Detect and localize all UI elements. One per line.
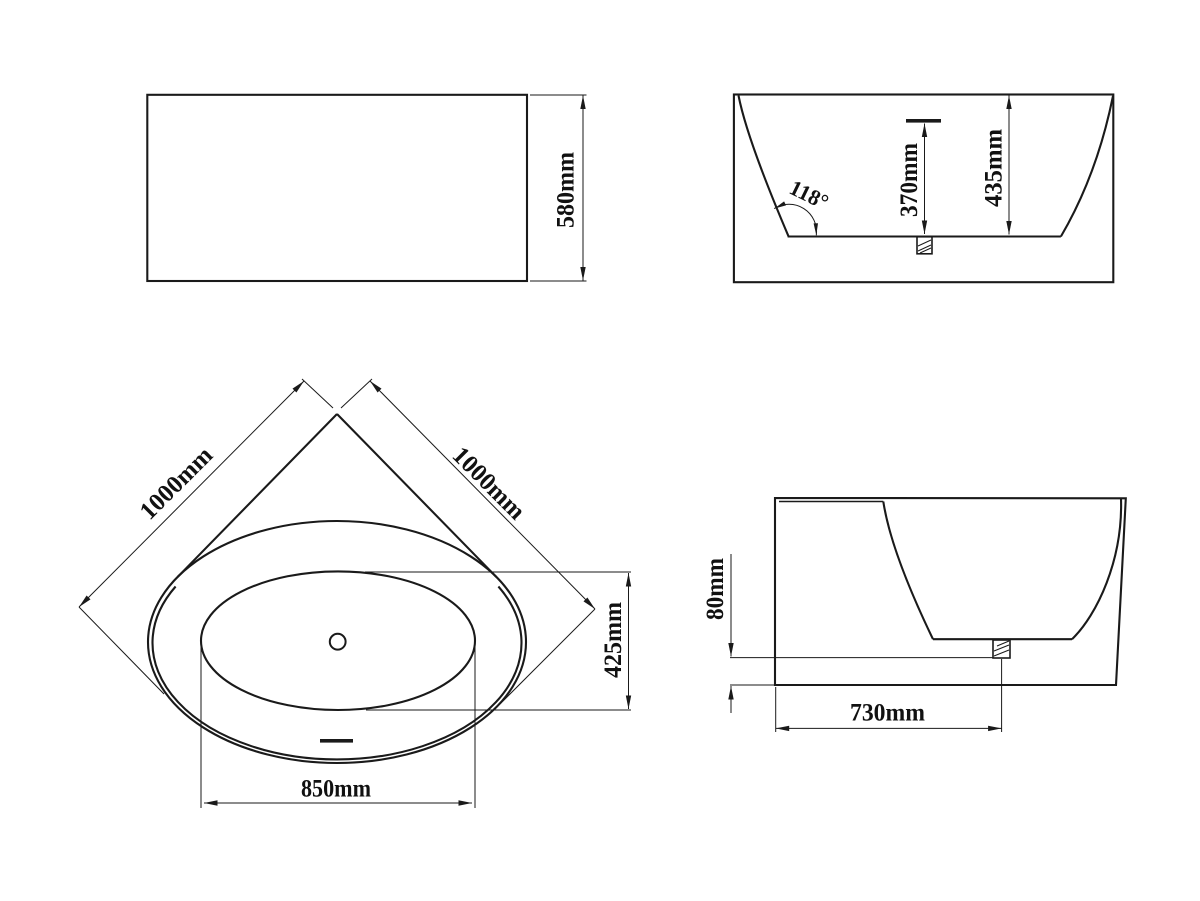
svg-text:580mm: 580mm — [553, 152, 580, 228]
svg-text:370mm: 370mm — [896, 143, 923, 217]
svg-text:1000mm: 1000mm — [447, 442, 531, 526]
svg-text:425mm: 425mm — [600, 602, 627, 678]
svg-text:118°: 118° — [786, 175, 833, 215]
svg-text:435mm: 435mm — [981, 129, 1008, 207]
svg-text:730mm: 730mm — [850, 700, 925, 727]
svg-text:80mm: 80mm — [702, 558, 729, 620]
svg-text:850mm: 850mm — [301, 776, 371, 803]
svg-text:1000mm: 1000mm — [135, 442, 219, 526]
